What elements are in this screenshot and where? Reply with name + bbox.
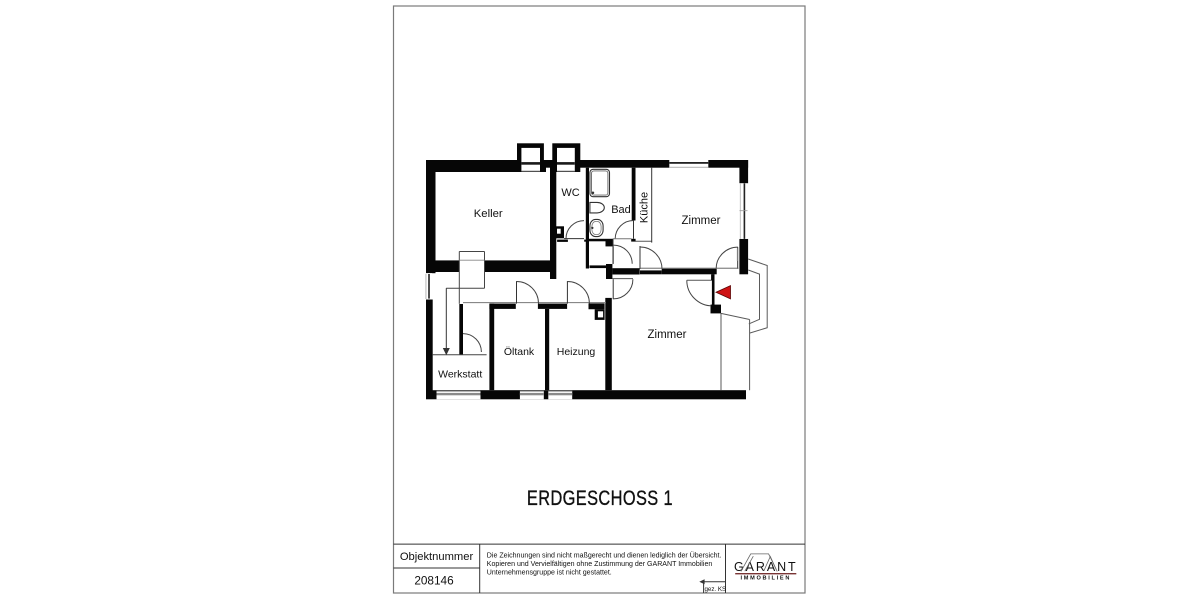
svg-text:WC: WC — [561, 187, 579, 199]
svg-text:IMMOBILIEN: IMMOBILIEN — [741, 575, 792, 581]
svg-text:Küche: Küche — [639, 192, 651, 223]
svg-text:Bad: Bad — [611, 204, 631, 216]
svg-text:Kopieren und Vervielfältigen o: Kopieren und Vervielfältigen ohne Zustim… — [487, 561, 713, 568]
svg-text:Die Zeichnungen sind nicht maß: Die Zeichnungen sind nicht maßgerecht un… — [487, 551, 722, 559]
svg-text:208146: 208146 — [414, 573, 454, 587]
svg-text:Heizung: Heizung — [557, 346, 596, 358]
svg-text:Keller: Keller — [474, 208, 503, 220]
svg-text:ERDGESCHOSS 1: ERDGESCHOSS 1 — [527, 486, 673, 509]
svg-text:Zimmer: Zimmer — [648, 329, 687, 341]
svg-text:Zimmer: Zimmer — [682, 215, 721, 227]
svg-text:gez. KS: gez. KS — [704, 586, 726, 593]
svg-text:Objektnummer: Objektnummer — [400, 551, 474, 563]
svg-text:Öltank: Öltank — [504, 346, 535, 358]
svg-text:Unternehmensgruppe ist nicht g: Unternehmensgruppe ist nicht gestattet. — [487, 570, 612, 577]
svg-text:Werkstatt: Werkstatt — [438, 369, 482, 381]
